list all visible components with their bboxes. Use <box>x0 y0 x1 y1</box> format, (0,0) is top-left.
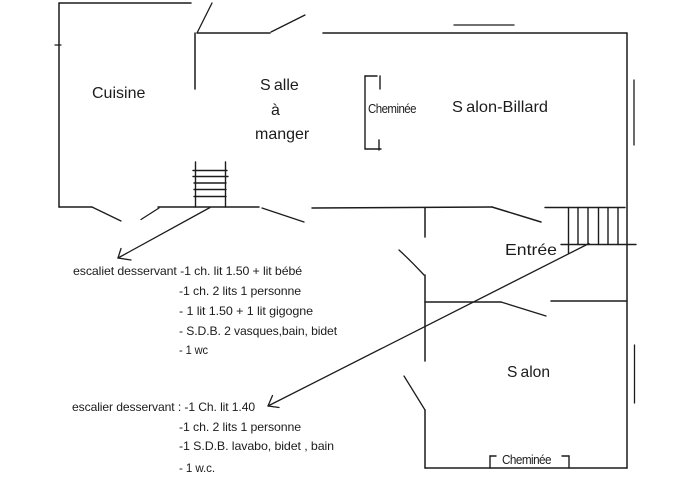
svg-text:Cuisine: Cuisine <box>92 85 145 102</box>
svg-text:- 1 wc: - 1 wc <box>179 343 208 357</box>
svg-text:S alon: S alon <box>507 364 550 381</box>
svg-text:Entrée: Entrée <box>505 242 557 259</box>
svg-text:-1 ch. 2 lits 1 personne: -1 ch. 2 lits 1 personne <box>179 284 301 298</box>
svg-text:- S.D.B. 2 vasques,bain, bidet: - S.D.B. 2 vasques,bain, bidet <box>179 324 338 338</box>
svg-text:- 1 lit 1.50 + 1 lit gigogne: - 1 lit 1.50 + 1 lit gigogne <box>179 304 313 318</box>
svg-text:à: à <box>271 102 280 119</box>
svg-text:Cheminée: Cheminée <box>502 452 551 467</box>
svg-text:-1 ch. 2 lits 1 personne: -1 ch. 2 lits 1 personne <box>179 420 301 434</box>
svg-text:escalier desservant : -1 Ch. l: escalier desservant : -1 Ch. lit 1.40 <box>72 400 255 414</box>
svg-text:manger: manger <box>255 126 310 143</box>
svg-text:-1 S.D.B. lavabo, bidet , bain: -1 S.D.B. lavabo, bidet , bain <box>179 439 334 453</box>
svg-text:- 1 w.c.: - 1 w.c. <box>179 461 215 475</box>
svg-text:S alle: S alle <box>260 77 299 94</box>
svg-text:Cheminée: Cheminée <box>368 101 416 116</box>
svg-text:escaliet desservant -1 ch. lit: escaliet desservant -1 ch. lit 1.50 + li… <box>73 264 302 278</box>
svg-text:S alon-Billard: S alon-Billard <box>452 99 548 116</box>
